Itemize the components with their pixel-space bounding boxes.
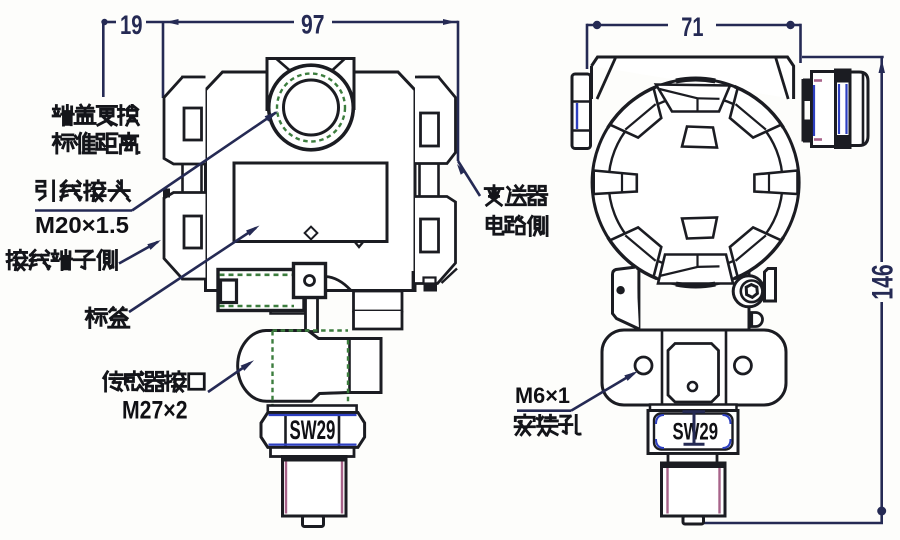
svg-text:146: 146 [866,264,899,300]
svg-text:M20×1.5: M20×1.5 [35,212,129,238]
svg-text:M27×2: M27×2 [122,397,188,425]
svg-text:19: 19 [120,10,143,40]
svg-text:97: 97 [301,10,325,40]
svg-text:M6×1: M6×1 [515,383,570,408]
svg-text:71: 71 [681,12,703,42]
svg-text:SW29: SW29 [290,415,336,445]
